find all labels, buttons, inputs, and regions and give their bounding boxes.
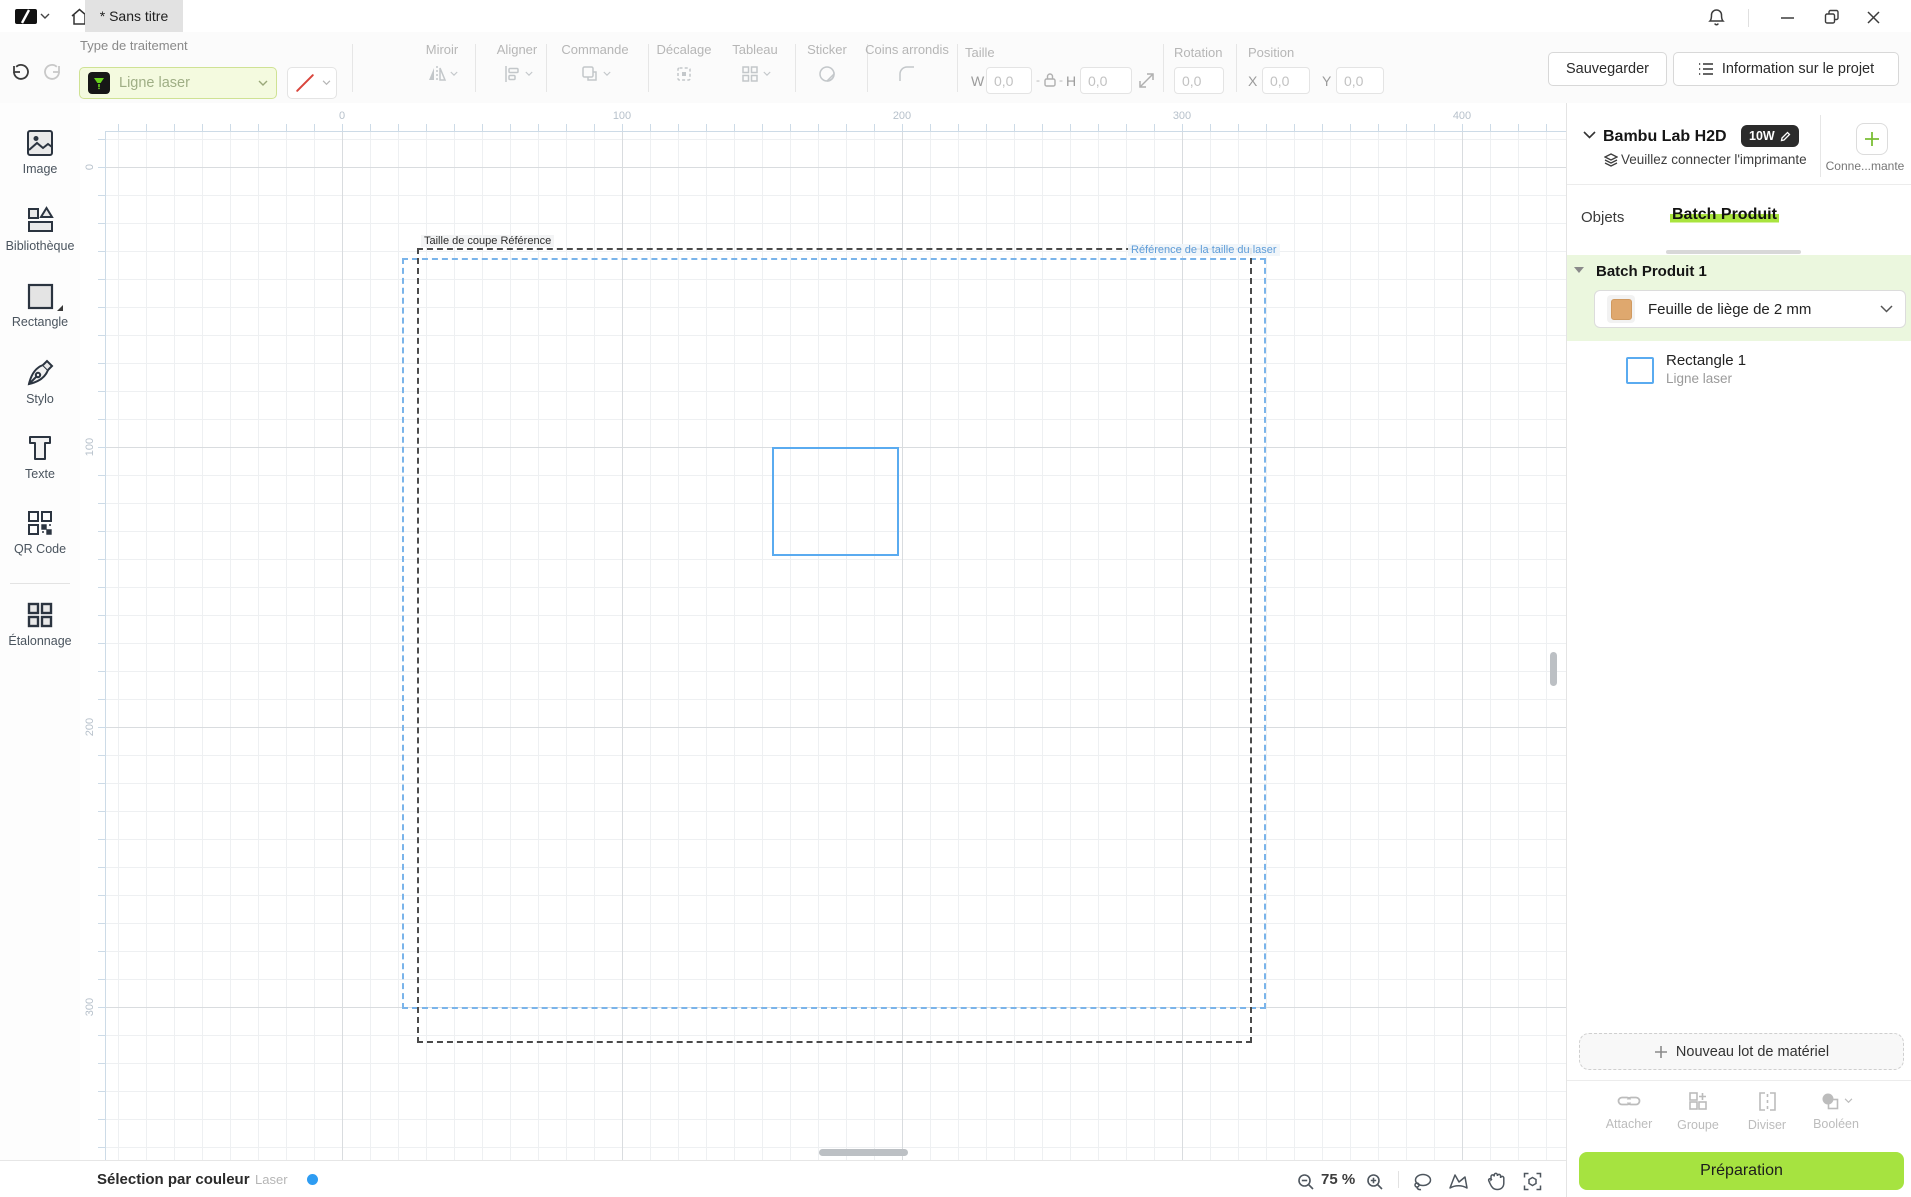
panel-divider (1567, 1080, 1911, 1081)
vertical-scrollbar[interactable] (1550, 652, 1557, 686)
mirror-icon (427, 64, 447, 84)
cut-size-reference-rect (417, 248, 1252, 1043)
plus-icon (1864, 131, 1880, 147)
chevron-down-icon (1844, 1098, 1853, 1104)
split-icon (1735, 1091, 1799, 1112)
ruler-label: 300 (84, 987, 96, 1027)
new-material-batch-button[interactable]: Nouveau lot de matériel (1579, 1033, 1904, 1070)
library-shapes-icon (0, 205, 80, 235)
zoom-in-icon[interactable] (1366, 1173, 1384, 1191)
position-group-label: Position (1248, 45, 1294, 60)
scale-expand-icon[interactable] (1138, 72, 1155, 89)
laser-size-reference-label: Référence de la taille du laser (1128, 244, 1280, 256)
image-icon (0, 128, 80, 158)
toolbar-separator (546, 44, 547, 92)
size-group-label: Taille (965, 45, 995, 60)
list-info-icon (1698, 62, 1714, 76)
vertical-ruler (98, 131, 106, 1160)
array-group[interactable]: Tableau (722, 42, 788, 84)
grid-array-icon (740, 64, 760, 84)
sidebar-item-etalonnage[interactable]: Étalonnage (0, 600, 80, 648)
rotation-input[interactable]: 0,0 (1174, 67, 1224, 94)
red-line-swatch (296, 74, 314, 92)
tab-sans-titre[interactable]: * Sans titre (85, 0, 183, 32)
rounded-corners-group[interactable]: Coins arrondis (857, 42, 957, 84)
horizontal-scrollbar[interactable] (819, 1149, 908, 1156)
process-type-label: Type de traitement (80, 38, 188, 53)
flyout-corner-indicator (57, 305, 63, 311)
status-bar: Sélection par couleur Laser 75 % (0, 1160, 1566, 1197)
app-window: * Sans titre Type de traitement Ligne l (0, 0, 1911, 1197)
chevron-down-icon (450, 71, 458, 77)
toolbar-separator (1163, 44, 1164, 92)
material-swatch (1607, 295, 1635, 323)
cut-size-reference-label: Taille de coupe Référence (421, 235, 554, 247)
offset-group[interactable]: Décalage (649, 42, 719, 84)
dash: - (1036, 73, 1040, 87)
rectangle-1-object[interactable] (772, 447, 899, 556)
horizontal-ruler (105, 124, 1566, 132)
ruler-label: 100 (84, 427, 96, 467)
chevron-down-icon (763, 71, 771, 77)
ruler-label: 400 (1442, 110, 1482, 122)
fit-view-icon[interactable] (1523, 1172, 1542, 1191)
boolean-button[interactable]: Booléen (1804, 1091, 1868, 1131)
height-letter: H (1066, 73, 1076, 89)
rectangle-thumbnail (1626, 357, 1654, 384)
dash: - (1059, 73, 1063, 87)
connect-printer-label: Conne...mante (1819, 159, 1911, 173)
width-input[interactable]: 0,0 (986, 67, 1032, 94)
save-button[interactable]: Sauvegarder (1548, 52, 1667, 86)
group-icon (1666, 1091, 1730, 1112)
pan-hand-icon[interactable] (1487, 1171, 1506, 1191)
ruler-label: 200 (882, 110, 922, 122)
rectangle-icon (0, 281, 80, 311)
toolbar: Type de traitement Ligne laser Miroir Al… (0, 32, 1911, 104)
device-chevron-icon[interactable] (1583, 131, 1596, 139)
rounded-corner-icon (897, 64, 917, 84)
batch-product-title: Batch Produit 1 (1596, 263, 1707, 280)
laser-color-dot[interactable] (307, 1174, 318, 1185)
zoom-level: 75 % (1321, 1161, 1355, 1197)
chevron-down-icon (322, 80, 331, 86)
titlebar-separator (1748, 9, 1749, 27)
tab-scroll-indicator[interactable] (1666, 250, 1801, 254)
sidebar-item-texte[interactable]: Texte (0, 433, 80, 481)
x-position-input[interactable]: 0,0 (1262, 67, 1310, 94)
group-button[interactable]: Groupe (1666, 1091, 1730, 1132)
connect-printer-button[interactable] (1856, 123, 1888, 155)
align-group[interactable]: Aligner (487, 42, 547, 84)
lock-ratio-icon[interactable] (1043, 72, 1057, 88)
ruler-label: 0 (84, 147, 96, 187)
connect-printer-hint: Veuillez connecter l'imprimante (1621, 152, 1807, 167)
ruler-label: 0 (322, 110, 362, 122)
ruler-label: 200 (84, 707, 96, 747)
toolbar-separator (957, 44, 958, 92)
align-icon (502, 64, 522, 84)
restore-window-button[interactable] (1821, 6, 1843, 28)
minimize-button[interactable] (1776, 6, 1798, 28)
chevron-down-icon[interactable] (40, 13, 50, 20)
y-position-input[interactable]: 0,0 (1336, 67, 1384, 94)
node-select-icon[interactable] (1448, 1172, 1469, 1191)
y-letter: Y (1322, 73, 1331, 89)
lasso-select-icon[interactable] (1412, 1172, 1432, 1191)
width-letter: W (971, 73, 984, 89)
project-info-button[interactable]: Information sur le projet (1673, 52, 1899, 86)
tab-batch-produit[interactable]: Batch Produit (1670, 206, 1779, 224)
qr-code-icon (0, 508, 80, 538)
offset-icon (674, 64, 694, 84)
ruler-label: 300 (1162, 110, 1202, 122)
command-group[interactable]: Commande (555, 42, 635, 84)
rotation-group-label: Rotation (1174, 45, 1222, 60)
sidebar-item-image[interactable]: Image (0, 128, 80, 176)
notification-bell-icon[interactable] (1705, 6, 1727, 28)
collapse-caret-icon[interactable] (1574, 267, 1584, 273)
sidebar-item-bibliotheque[interactable]: Bibliothèque (0, 205, 80, 253)
toolbar-separator (1236, 44, 1237, 92)
toolbar-separator (352, 44, 353, 92)
tab-objets[interactable]: Objets (1581, 209, 1624, 226)
right-panel: Bambu Lab H2D 10W Veuillez connecter l'i… (1566, 103, 1911, 1197)
material-select[interactable]: Feuille de liège de 2 mm (1594, 290, 1906, 328)
pencil-edit-icon (1780, 131, 1791, 142)
pen-icon (0, 358, 80, 388)
tool-sidebar: Image Bibliothèque Rectangle Stylo Te (0, 103, 81, 1160)
chevron-down-icon (525, 71, 533, 77)
toolbar-separator (795, 44, 796, 92)
chevron-down-icon (258, 80, 268, 87)
zoom-out-icon[interactable] (1297, 1173, 1315, 1191)
device-name[interactable]: Bambu Lab H2D (1603, 128, 1727, 146)
attach-button[interactable]: Attacher (1597, 1091, 1661, 1131)
object-name: Rectangle 1 (1666, 352, 1746, 369)
laser-head-icon (88, 72, 110, 94)
calibration-icon (0, 600, 80, 630)
mirror-group[interactable]: Miroir (409, 42, 475, 84)
close-button[interactable] (1862, 6, 1884, 28)
title-bar: * Sans titre (0, 0, 1911, 32)
undo-icon[interactable] (10, 63, 30, 83)
design-canvas[interactable]: 0 100 200 300 400 0 100 200 300 Taille d… (80, 103, 1566, 1160)
height-input[interactable]: 0,0 (1080, 67, 1132, 94)
printer-layers-icon (1604, 153, 1618, 167)
material-name: Feuille de liège de 2 mm (1648, 301, 1867, 318)
text-icon (0, 433, 80, 463)
plus-icon (1654, 1045, 1668, 1059)
color-selection-label[interactable]: Sélection par couleur (97, 1161, 250, 1197)
x-letter: X (1248, 73, 1257, 89)
sidebar-item-qr-code[interactable]: QR Code (0, 508, 80, 556)
bambu-logo-icon[interactable] (15, 9, 37, 24)
toolbar-separator (475, 44, 476, 92)
stroke-color-button[interactable] (287, 67, 337, 99)
statusbar-separator (1398, 1171, 1399, 1188)
process-type-select[interactable]: Ligne laser (79, 67, 277, 99)
object-list-item[interactable]: Rectangle 1 Ligne laser (1567, 349, 1911, 399)
command-icon (580, 64, 600, 84)
batch-product-section: Batch Produit 1 Feuille de liège de 2 mm (1567, 255, 1911, 341)
device-power-badge[interactable]: 10W (1741, 125, 1799, 147)
boolean-icon (1820, 1091, 1842, 1111)
sidebar-item-rectangle[interactable]: Rectangle (0, 281, 80, 329)
chevron-down-icon (603, 71, 611, 77)
sidebar-item-stylo[interactable]: Stylo (0, 358, 80, 406)
tab-title: * Sans titre (100, 8, 168, 24)
prepare-button[interactable]: Préparation (1579, 1152, 1904, 1190)
laser-layer-label: Laser (255, 1161, 288, 1197)
link-icon (1597, 1091, 1661, 1111)
panel-divider (1567, 184, 1911, 185)
process-type-value: Ligne laser (119, 75, 249, 91)
split-button[interactable]: Diviser (1735, 1091, 1799, 1132)
object-process-type: Ligne laser (1666, 371, 1732, 386)
chevron-down-icon (1880, 305, 1893, 313)
sidebar-divider (10, 583, 70, 584)
sticker-group[interactable]: Sticker (797, 42, 857, 84)
redo-icon[interactable] (43, 63, 63, 83)
sticker-icon (817, 64, 837, 84)
ruler-label: 100 (602, 110, 642, 122)
